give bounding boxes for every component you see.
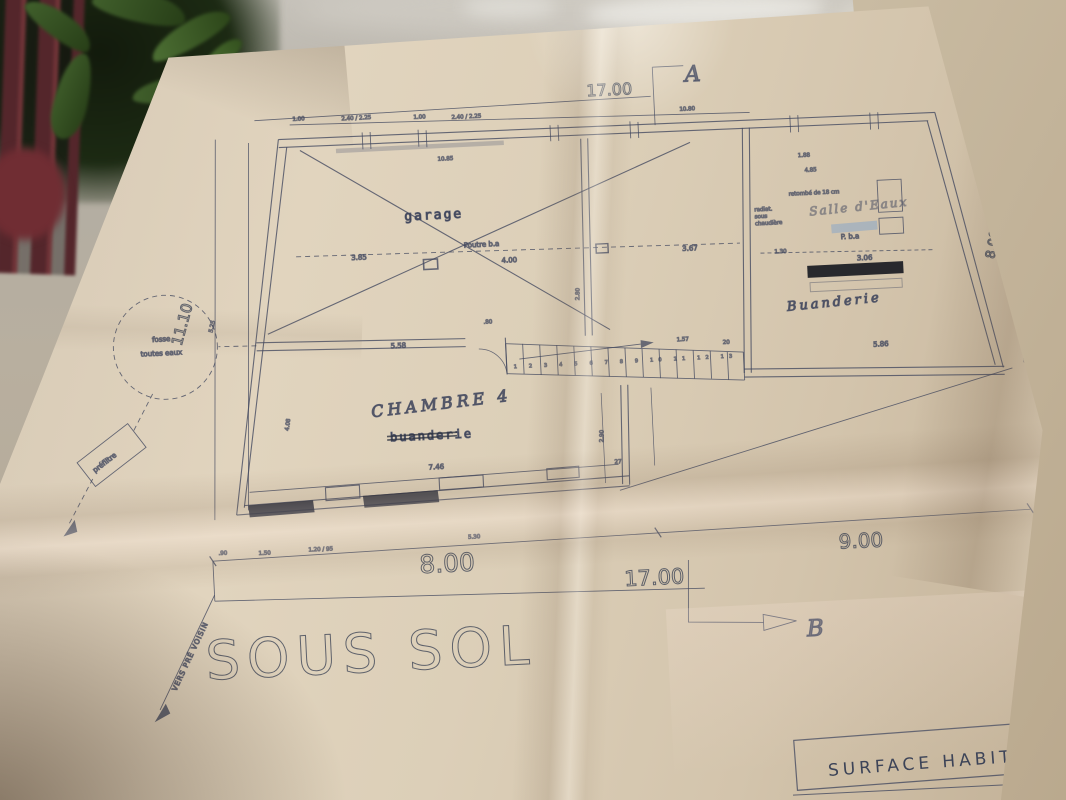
dim-g1: 3.85	[351, 253, 367, 262]
dim-c1: 5.58	[390, 342, 406, 351]
dim-g2: 4.00	[501, 256, 517, 265]
note-prefiltre: préfiltre	[91, 451, 118, 474]
room-label-chambre4: CHAMBRE 4	[370, 386, 512, 422]
note-poutre: Poutre b.a	[464, 240, 500, 250]
dim-r4: 5.86	[873, 340, 890, 349]
room-label-garage: garage	[404, 207, 464, 225]
dim-r2: 4.85	[804, 167, 817, 174]
note-sous: sous	[755, 214, 768, 221]
dim-c2: 1.57	[676, 337, 689, 344]
note-p-ba: P. b.a	[841, 232, 860, 241]
dim-bottom-total: 17.00	[624, 564, 685, 591]
dim-b4: 4.08	[285, 418, 293, 431]
dim-m1: 3.67	[682, 244, 698, 253]
dim-r3: 3.06	[857, 254, 874, 263]
room-label-salle-eaux: Salle d'Eaux	[809, 195, 909, 219]
room-label-buanderie-hand: Buanderie	[785, 290, 882, 315]
note-retombe: retombé de 18 cm	[788, 188, 839, 197]
photo-of-blueprint: garage CHAMBRE 4 buanderie Buanderie Sal…	[0, 0, 1066, 800]
dim-m3: 1.30	[774, 249, 787, 256]
blueprint-paper: garage CHAMBRE 4 buanderie Buanderie Sal…	[0, 0, 1066, 800]
dim-t6: 10.85	[437, 156, 454, 163]
note-chaudiere: chaudière	[755, 219, 783, 227]
dim-g3: .80	[483, 319, 493, 325]
dim-c3: 20	[723, 340, 731, 346]
paper-highlight-bottom	[666, 587, 1066, 779]
paper-corner-shadow-dark	[0, 515, 380, 800]
note-radiateur: radiat.	[754, 206, 772, 213]
dim-r1: 1.88	[798, 153, 811, 160]
dim-t3: 1.00	[413, 114, 426, 121]
